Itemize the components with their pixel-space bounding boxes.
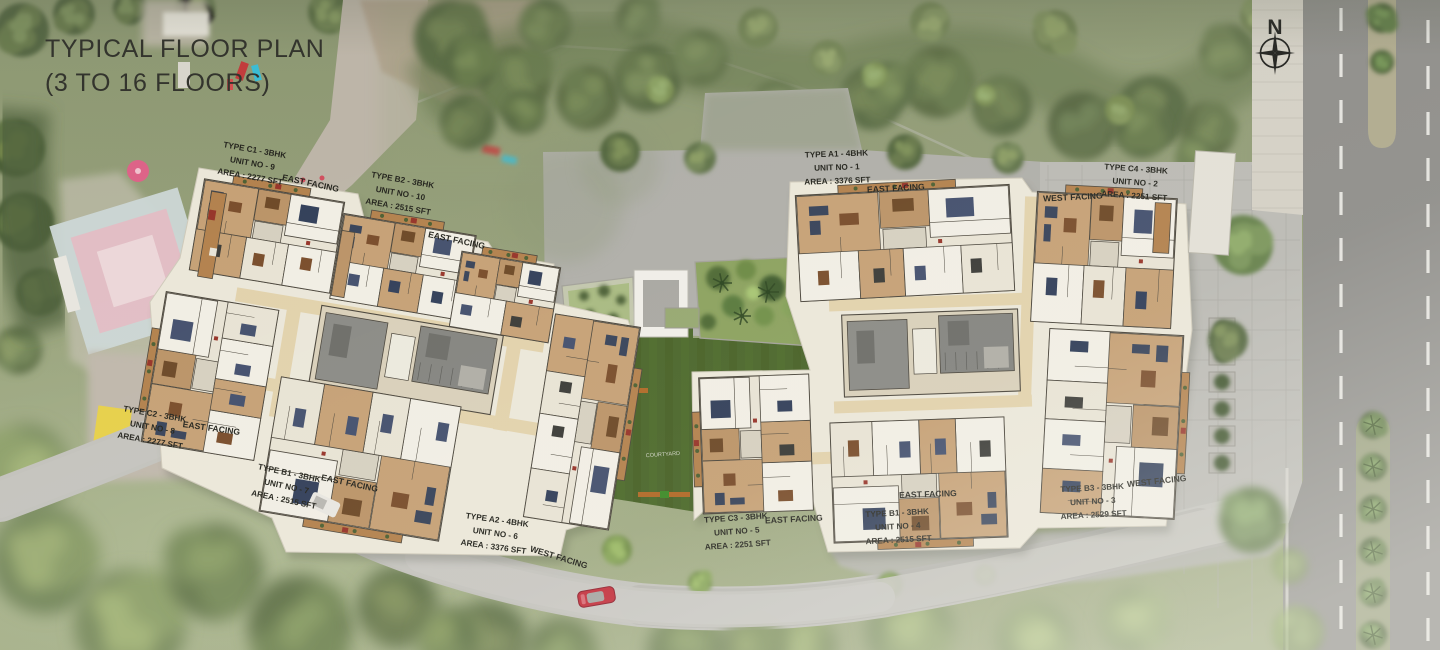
svg-text:UNIT NO - 1: UNIT NO - 1 <box>814 162 860 173</box>
svg-text:(3 TO 16 FLOORS): (3 TO 16 FLOORS) <box>45 69 270 97</box>
svg-text:TYPICAL FLOOR PLAN: TYPICAL FLOOR PLAN <box>45 35 324 63</box>
svg-text:EAST FACING: EAST FACING <box>899 488 957 500</box>
